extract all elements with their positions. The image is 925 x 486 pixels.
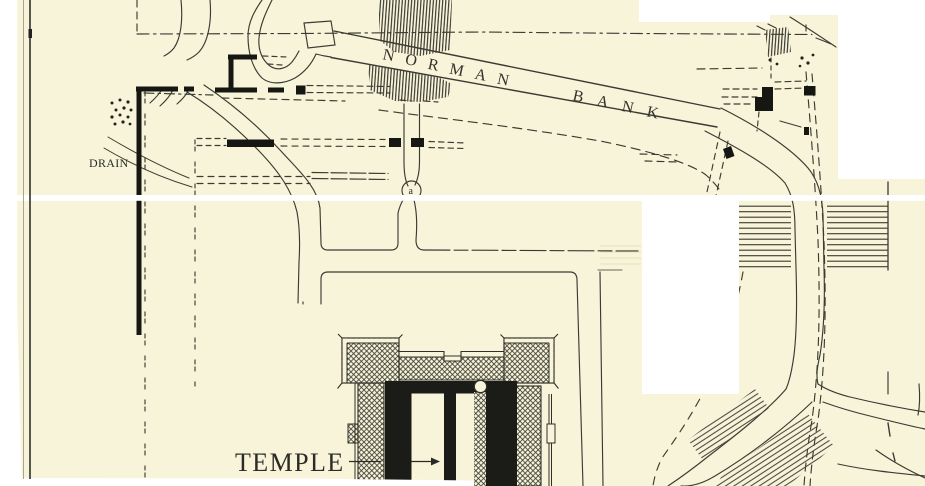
svg-text:DRAIN: DRAIN <box>89 156 129 170</box>
svg-text:TEMPLE: TEMPLE <box>235 448 345 477</box>
